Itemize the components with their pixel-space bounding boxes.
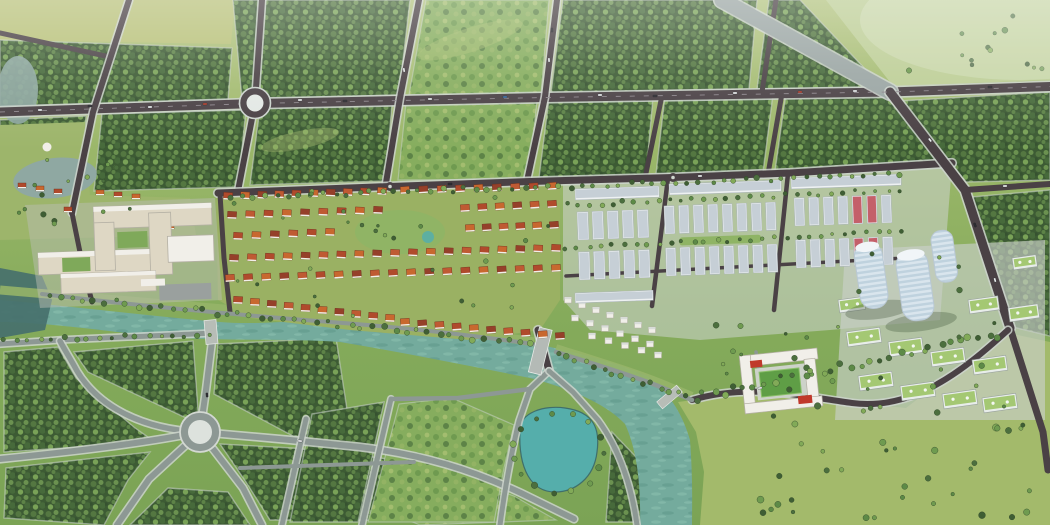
tree bbox=[666, 389, 672, 395]
tree bbox=[795, 192, 799, 196]
hospital-parking bbox=[159, 283, 212, 301]
villa bbox=[300, 209, 309, 217]
villa bbox=[486, 326, 495, 334]
tree bbox=[194, 333, 200, 339]
tree bbox=[722, 178, 726, 182]
park-pavilion bbox=[132, 194, 140, 199]
tree bbox=[316, 304, 320, 308]
tree bbox=[23, 207, 27, 211]
aerial-masterplan-render bbox=[0, 0, 1050, 525]
tree bbox=[644, 242, 649, 247]
tree bbox=[406, 190, 410, 194]
tree bbox=[33, 183, 37, 187]
tree bbox=[792, 175, 796, 179]
tree bbox=[877, 229, 881, 233]
tree bbox=[695, 180, 700, 185]
tree bbox=[545, 183, 550, 188]
tree bbox=[771, 414, 776, 419]
villa bbox=[252, 231, 261, 239]
tree bbox=[527, 340, 533, 346]
tree bbox=[897, 172, 903, 178]
tree bbox=[351, 314, 355, 318]
tree bbox=[740, 353, 743, 356]
tree bbox=[786, 236, 790, 240]
tree bbox=[725, 372, 728, 375]
tree bbox=[326, 319, 330, 323]
tree bbox=[533, 185, 537, 189]
tree bbox=[807, 368, 812, 373]
tree bbox=[25, 339, 29, 343]
tree bbox=[580, 184, 584, 188]
tree bbox=[630, 180, 635, 185]
tree bbox=[693, 240, 698, 245]
tree bbox=[620, 198, 625, 203]
tree bbox=[957, 335, 961, 339]
tree bbox=[880, 439, 886, 445]
tree bbox=[893, 447, 897, 451]
tree bbox=[391, 189, 396, 194]
tree bbox=[347, 221, 350, 224]
tree bbox=[268, 316, 273, 321]
tree bbox=[640, 381, 645, 386]
tree bbox=[481, 336, 487, 342]
tree bbox=[972, 461, 977, 466]
tree bbox=[805, 175, 809, 179]
tree bbox=[110, 336, 114, 340]
tree bbox=[860, 364, 865, 369]
tree bbox=[866, 358, 872, 364]
tree bbox=[957, 287, 963, 293]
white-villa bbox=[655, 352, 662, 358]
tree bbox=[555, 183, 560, 188]
tree bbox=[679, 239, 683, 243]
tree bbox=[631, 378, 635, 382]
tree bbox=[861, 174, 865, 178]
school-campus bbox=[739, 348, 823, 414]
tree bbox=[40, 337, 44, 341]
villa bbox=[461, 267, 470, 275]
tree bbox=[75, 337, 80, 342]
tree bbox=[597, 434, 603, 440]
tree bbox=[902, 484, 908, 490]
villa bbox=[318, 306, 327, 314]
villa bbox=[390, 249, 399, 257]
tree bbox=[510, 188, 514, 192]
tree bbox=[684, 181, 688, 185]
villa bbox=[495, 203, 504, 211]
tree bbox=[886, 171, 891, 176]
tree bbox=[677, 390, 681, 394]
tree bbox=[518, 340, 523, 345]
villa bbox=[337, 251, 346, 259]
tree bbox=[640, 180, 644, 184]
tree bbox=[148, 333, 153, 338]
tree bbox=[695, 398, 701, 404]
tree bbox=[438, 332, 444, 338]
tree bbox=[648, 380, 653, 385]
tree bbox=[459, 336, 464, 341]
hospital-courtyard bbox=[117, 231, 148, 248]
tree bbox=[993, 321, 997, 325]
villa bbox=[355, 250, 364, 258]
white-villa bbox=[617, 331, 624, 337]
tree bbox=[128, 207, 131, 210]
tree bbox=[59, 294, 65, 300]
tree bbox=[849, 365, 855, 371]
tree bbox=[713, 322, 719, 328]
tree bbox=[286, 194, 291, 199]
tree bbox=[940, 341, 946, 347]
villa bbox=[229, 254, 238, 262]
tree bbox=[358, 327, 362, 331]
villa bbox=[443, 268, 452, 276]
tree bbox=[52, 221, 57, 226]
tree bbox=[302, 319, 306, 323]
tree bbox=[683, 393, 688, 398]
villa bbox=[435, 321, 444, 329]
tree bbox=[772, 196, 775, 199]
villa bbox=[284, 302, 293, 310]
tree bbox=[546, 224, 549, 227]
tree bbox=[71, 296, 75, 300]
villa bbox=[521, 329, 530, 337]
villa bbox=[504, 328, 513, 336]
villa bbox=[316, 271, 325, 279]
tree bbox=[62, 334, 68, 340]
tree bbox=[484, 187, 490, 193]
tree bbox=[85, 175, 90, 180]
tree bbox=[878, 405, 882, 409]
tree bbox=[762, 382, 766, 386]
tree bbox=[587, 203, 591, 207]
tree bbox=[969, 467, 973, 471]
tree bbox=[864, 230, 868, 234]
tree bbox=[160, 334, 164, 338]
tree bbox=[600, 203, 605, 208]
tree bbox=[80, 299, 84, 303]
tree bbox=[557, 351, 562, 356]
tree bbox=[740, 385, 745, 390]
villa bbox=[532, 222, 541, 230]
tree bbox=[132, 334, 137, 339]
tree bbox=[101, 301, 107, 307]
villa bbox=[326, 189, 335, 197]
park-pavilion bbox=[114, 192, 122, 197]
tree bbox=[590, 184, 594, 188]
tree bbox=[783, 191, 787, 195]
tree bbox=[657, 198, 662, 203]
tree bbox=[394, 328, 400, 334]
villa bbox=[325, 228, 334, 236]
tree bbox=[868, 406, 873, 411]
tree bbox=[974, 384, 978, 388]
tree bbox=[236, 280, 239, 283]
villa-park-pond bbox=[422, 231, 434, 243]
tree bbox=[769, 179, 773, 183]
tree bbox=[748, 194, 753, 199]
tree bbox=[821, 449, 825, 453]
villa bbox=[385, 314, 394, 322]
tree bbox=[89, 298, 95, 304]
park-pavilion bbox=[96, 190, 104, 195]
tree bbox=[979, 363, 985, 369]
tree bbox=[228, 195, 233, 200]
villa-central-park bbox=[355, 210, 445, 254]
tree bbox=[773, 380, 780, 387]
tree bbox=[661, 180, 666, 185]
villa bbox=[452, 323, 461, 331]
tree bbox=[428, 189, 433, 194]
villa bbox=[516, 245, 525, 253]
tree bbox=[360, 223, 364, 227]
villa bbox=[355, 207, 364, 215]
car bbox=[298, 440, 302, 442]
tree bbox=[568, 488, 574, 494]
villa bbox=[515, 265, 524, 273]
villa bbox=[469, 324, 478, 332]
villa bbox=[419, 186, 428, 194]
tree bbox=[635, 242, 639, 246]
tree bbox=[772, 235, 776, 239]
tree bbox=[760, 194, 764, 198]
tree bbox=[232, 201, 236, 205]
white-villa bbox=[589, 333, 596, 339]
tree bbox=[240, 194, 245, 199]
villa bbox=[368, 312, 377, 320]
car bbox=[698, 175, 702, 177]
tree bbox=[900, 495, 904, 499]
tree bbox=[618, 373, 624, 379]
tree bbox=[415, 188, 419, 192]
villa bbox=[555, 332, 564, 340]
tree bbox=[899, 349, 906, 356]
villa bbox=[406, 269, 415, 277]
tree bbox=[840, 191, 845, 196]
car bbox=[448, 183, 452, 185]
tree bbox=[374, 229, 378, 233]
tree bbox=[609, 372, 614, 377]
villa bbox=[247, 254, 256, 262]
tree bbox=[852, 231, 856, 235]
tree bbox=[370, 323, 376, 329]
tree bbox=[493, 195, 497, 199]
tree bbox=[566, 201, 570, 205]
tree bbox=[510, 441, 517, 448]
tree bbox=[723, 196, 728, 201]
school-red-accent bbox=[798, 395, 813, 404]
tree bbox=[837, 361, 843, 367]
school-red-accent bbox=[750, 360, 763, 368]
tree bbox=[292, 317, 297, 322]
tree bbox=[843, 233, 847, 237]
tree bbox=[979, 512, 986, 519]
tree bbox=[308, 267, 312, 271]
tree bbox=[797, 235, 802, 240]
villa bbox=[319, 208, 328, 216]
tree bbox=[824, 468, 829, 473]
tree bbox=[660, 387, 665, 392]
tree bbox=[836, 325, 839, 328]
tree bbox=[713, 389, 719, 395]
tree bbox=[805, 336, 809, 340]
tree bbox=[158, 304, 163, 309]
villa bbox=[282, 209, 291, 217]
tree bbox=[588, 481, 593, 486]
villa bbox=[225, 274, 234, 282]
tree bbox=[975, 335, 980, 340]
tree bbox=[807, 235, 811, 239]
tree bbox=[599, 244, 603, 248]
roundabout-park bbox=[180, 412, 220, 452]
tree bbox=[193, 306, 198, 311]
tree bbox=[381, 189, 386, 194]
tree bbox=[512, 456, 518, 462]
tree bbox=[259, 316, 265, 322]
tree bbox=[964, 334, 971, 341]
tree bbox=[701, 240, 705, 244]
villa bbox=[334, 271, 343, 279]
villa bbox=[479, 266, 488, 274]
villa bbox=[264, 210, 273, 218]
tree bbox=[721, 362, 725, 366]
villa bbox=[250, 298, 259, 306]
tree bbox=[46, 158, 49, 161]
tree bbox=[262, 193, 267, 198]
tree bbox=[828, 174, 833, 179]
villa bbox=[408, 249, 417, 257]
villa bbox=[465, 224, 474, 232]
tree bbox=[830, 379, 835, 384]
tree bbox=[282, 217, 285, 220]
tree bbox=[749, 385, 755, 391]
tree bbox=[757, 496, 764, 503]
villa bbox=[460, 204, 469, 212]
villa bbox=[499, 223, 508, 231]
park-pavilion bbox=[54, 189, 62, 194]
villa bbox=[283, 253, 292, 261]
tree bbox=[760, 237, 764, 241]
tree bbox=[784, 332, 787, 335]
villa bbox=[227, 211, 236, 219]
villa bbox=[246, 211, 255, 219]
tree bbox=[474, 187, 479, 192]
tree bbox=[689, 196, 693, 200]
tree bbox=[863, 515, 869, 521]
tree bbox=[483, 259, 488, 264]
white-villa bbox=[622, 343, 629, 349]
villa bbox=[301, 252, 310, 260]
tree bbox=[828, 369, 833, 374]
tree bbox=[382, 323, 388, 329]
tree bbox=[591, 365, 596, 370]
tree bbox=[182, 335, 186, 339]
tree bbox=[934, 410, 940, 416]
tree bbox=[519, 472, 523, 476]
tree bbox=[1021, 423, 1025, 427]
tree bbox=[994, 335, 1000, 341]
tree bbox=[419, 224, 423, 228]
villa bbox=[261, 273, 270, 281]
tree bbox=[738, 238, 741, 241]
tree bbox=[649, 182, 653, 186]
villa bbox=[426, 248, 435, 256]
tree bbox=[716, 237, 721, 242]
tree bbox=[15, 338, 20, 343]
tree bbox=[424, 329, 429, 334]
tree bbox=[431, 268, 435, 272]
tree bbox=[937, 256, 941, 260]
tree bbox=[674, 181, 678, 185]
tree bbox=[948, 339, 954, 345]
villa bbox=[498, 246, 507, 254]
tree bbox=[669, 198, 672, 201]
tree bbox=[791, 510, 795, 514]
tree bbox=[41, 212, 47, 218]
tree bbox=[839, 468, 844, 473]
tree bbox=[731, 349, 736, 354]
tree bbox=[744, 176, 748, 180]
tree bbox=[570, 411, 575, 416]
tree bbox=[40, 192, 45, 197]
villa bbox=[298, 272, 307, 280]
tree bbox=[170, 334, 174, 338]
tree bbox=[817, 174, 822, 179]
tree bbox=[335, 193, 339, 197]
villa bbox=[444, 248, 453, 256]
tree bbox=[603, 368, 607, 372]
tree bbox=[957, 265, 961, 269]
tree bbox=[838, 173, 842, 177]
villa bbox=[547, 200, 556, 208]
tree bbox=[281, 316, 286, 321]
tree bbox=[777, 473, 783, 479]
villa bbox=[373, 206, 382, 214]
tree bbox=[873, 172, 877, 176]
villa bbox=[530, 201, 539, 209]
tree bbox=[888, 190, 891, 193]
car bbox=[206, 393, 208, 397]
tree bbox=[884, 449, 888, 453]
tree bbox=[531, 482, 538, 489]
car bbox=[1003, 185, 1007, 187]
white-villa bbox=[632, 336, 639, 342]
tree bbox=[850, 175, 854, 179]
villa bbox=[478, 203, 487, 211]
tree bbox=[523, 238, 528, 243]
tree bbox=[807, 192, 811, 196]
tree bbox=[563, 247, 567, 251]
tree bbox=[735, 195, 740, 200]
tree bbox=[872, 516, 876, 520]
tree bbox=[606, 185, 610, 189]
villa bbox=[265, 253, 274, 261]
tree bbox=[342, 209, 346, 213]
white-villa bbox=[647, 341, 654, 347]
tree bbox=[670, 241, 675, 246]
tree bbox=[309, 192, 313, 196]
villa bbox=[400, 318, 409, 326]
tree bbox=[584, 359, 589, 364]
tree bbox=[469, 337, 475, 343]
tree bbox=[48, 294, 52, 298]
tree bbox=[49, 338, 53, 342]
villa bbox=[233, 296, 242, 304]
tree bbox=[235, 310, 239, 314]
tree bbox=[550, 411, 555, 416]
tree bbox=[497, 187, 501, 191]
tree bbox=[877, 359, 882, 364]
tree bbox=[518, 426, 524, 432]
